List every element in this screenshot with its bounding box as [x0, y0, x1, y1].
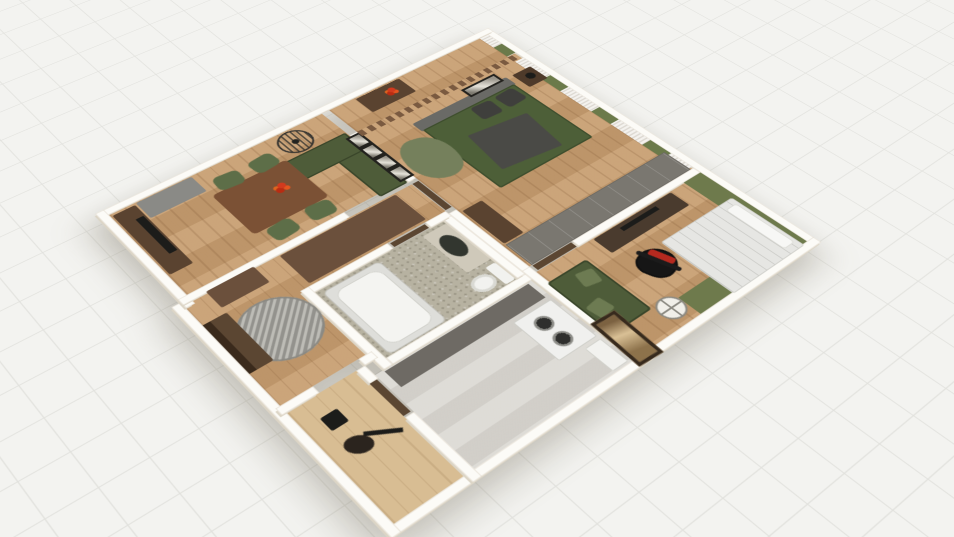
scene-world	[86, 28, 821, 537]
design-canvas-viewport[interactable]	[0, 0, 954, 537]
